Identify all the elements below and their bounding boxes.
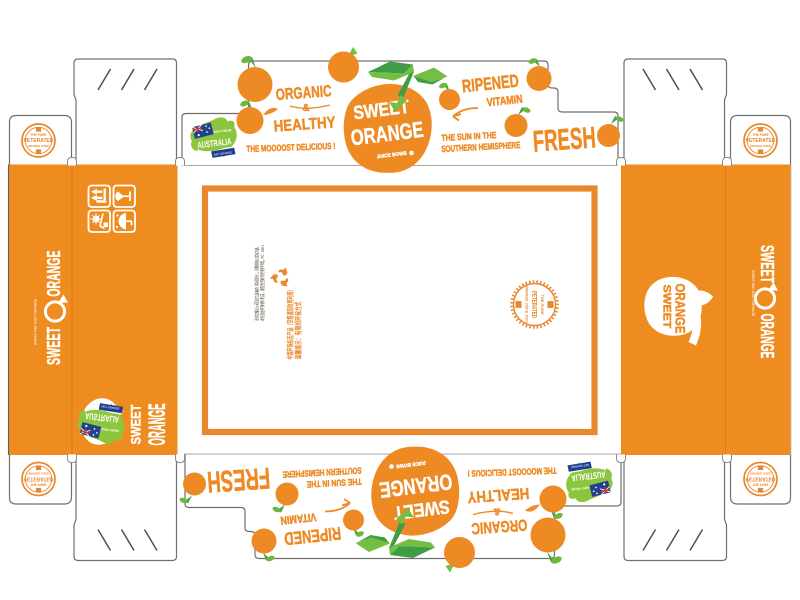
svg-text:SWEET: SWEET bbox=[757, 245, 777, 283]
svg-text:SWEET: SWEET bbox=[661, 285, 673, 329]
svg-text:温馨提示：有限的环保方式: 温馨提示：有限的环保方式 bbox=[294, 301, 303, 359]
svg-text:SWEET AND JUICY ORANGE: SWEET AND JUICY ORANGE bbox=[751, 270, 755, 317]
svg-text:SWEET: SWEET bbox=[128, 404, 144, 444]
svg-text:ORANGE: ORANGE bbox=[144, 404, 171, 446]
svg-text:ORANGE: ORANGE bbox=[44, 251, 64, 297]
svg-text:SWEET AND JUICY ORANGE: SWEET AND JUICY ORANGE bbox=[34, 298, 38, 345]
svg-text:中国环保标志产品（空瓶请回收再利用）: 中国环保标志产品（空瓶请回收再利用） bbox=[286, 288, 295, 360]
svg-text:本包装由环保材料制成，请配合回收利用保护环境。PC：168-: 本包装由环保材料制成，请配合回收利用保护环境。PC：168-1 bbox=[259, 245, 266, 321]
svg-text:ORANGE: ORANGE bbox=[757, 314, 777, 359]
svg-text:ORANGE: ORANGE bbox=[673, 284, 689, 334]
svg-text:SWEET: SWEET bbox=[44, 327, 64, 365]
